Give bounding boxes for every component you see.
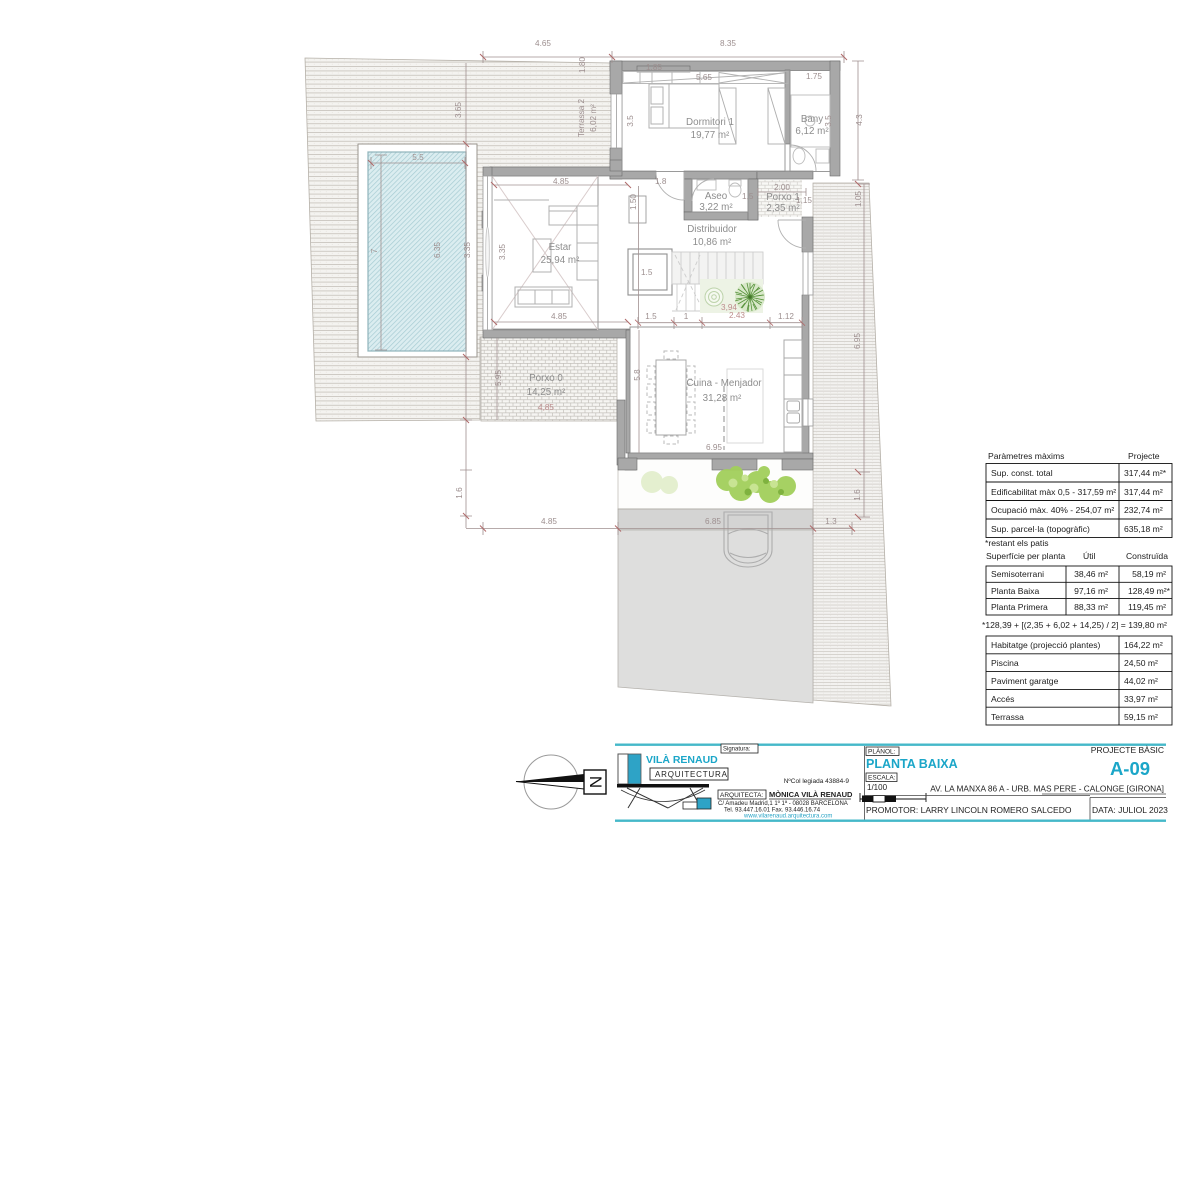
svg-text:MÒNICA VILÀ RENAUD: MÒNICA VILÀ RENAUD — [769, 790, 853, 799]
svg-text:6,02 m²: 6,02 m² — [589, 104, 598, 132]
svg-text:31,28 m²: 31,28 m² — [703, 393, 742, 404]
svg-text:Porxo 1: Porxo 1 — [766, 192, 800, 203]
svg-text:4.3: 4.3 — [855, 114, 864, 126]
svg-text:1.6: 1.6 — [455, 487, 464, 499]
svg-text:4.85: 4.85 — [551, 312, 567, 321]
svg-text:Signatura:: Signatura: — [723, 747, 751, 753]
svg-text:Aseo: Aseo — [705, 191, 728, 202]
svg-text:AV. LA MANXA 86 A - URB. MAS P: AV. LA MANXA 86 A - URB. MAS PERE - CALO… — [930, 784, 1164, 794]
svg-text:4.65: 4.65 — [535, 39, 551, 48]
svg-text:1/100: 1/100 — [867, 783, 888, 792]
svg-text:PLÀNOL:: PLÀNOL: — [868, 747, 896, 756]
svg-text:Cuina - Menjador: Cuina - Menjador — [686, 378, 762, 389]
svg-text:3.65: 3.65 — [454, 102, 463, 118]
svg-text:1.12: 1.12 — [778, 312, 794, 321]
svg-text:1.05: 1.05 — [854, 191, 863, 207]
svg-text:8.35: 8.35 — [720, 39, 736, 48]
svg-text:4.85: 4.85 — [541, 517, 557, 526]
svg-text:6.85: 6.85 — [705, 517, 721, 526]
svg-text:33,97 m²: 33,97 m² — [1124, 694, 1158, 704]
svg-text:1.3: 1.3 — [825, 517, 837, 526]
svg-text:164,22 m²: 164,22 m² — [1124, 640, 1163, 650]
svg-text:3.35: 3.35 — [463, 242, 472, 258]
svg-text:128,49 m²*: 128,49 m²* — [1128, 586, 1171, 596]
svg-text:10,86 m²: 10,86 m² — [693, 237, 732, 248]
svg-text:2.00: 2.00 — [774, 183, 790, 192]
svg-text:Semisoterrani: Semisoterrani — [991, 569, 1044, 579]
svg-text:*restant els patis: *restant els patis — [985, 538, 1049, 548]
svg-text:1.5: 1.5 — [645, 312, 657, 321]
svg-text:6.95: 6.95 — [706, 443, 722, 452]
svg-text:VILÀ RENAUD: VILÀ RENAUD — [646, 753, 718, 766]
svg-text:1.80: 1.80 — [578, 57, 587, 73]
svg-text:Estar: Estar — [549, 242, 573, 253]
svg-text:ARQUITECTURA: ARQUITECTURA — [655, 770, 728, 779]
svg-text:DATA: JULIOL 2023: DATA: JULIOL 2023 — [1092, 805, 1168, 815]
svg-text:Distribuidor: Distribuidor — [687, 224, 737, 235]
svg-text:5.5: 5.5 — [412, 153, 424, 162]
svg-text:4.85: 4.85 — [553, 177, 569, 186]
svg-text:38,46 m²: 38,46 m² — [1074, 569, 1108, 579]
svg-text:88,33 m²: 88,33 m² — [1074, 602, 1108, 612]
svg-text:Útil: Útil — [1083, 551, 1096, 561]
svg-text:232,74 m²: 232,74 m² — [1124, 505, 1163, 515]
svg-text:Sup. const. total: Sup. const. total — [991, 468, 1053, 478]
svg-text:Habitatge (projecció plantes: Habitatge (projecció plantes) — [991, 640, 1101, 650]
svg-text:5.65: 5.65 — [696, 73, 712, 82]
svg-text:317,44 m²: 317,44 m² — [1124, 487, 1163, 497]
svg-text:1.8: 1.8 — [655, 177, 667, 186]
svg-text:Porxo 0: Porxo 0 — [529, 373, 563, 384]
svg-text:PLANTA BAIXA: PLANTA BAIXA — [866, 757, 958, 771]
svg-text:1.75: 1.75 — [806, 72, 822, 81]
svg-text:3.35: 3.35 — [498, 244, 507, 260]
svg-text:Piscina: Piscina — [991, 658, 1019, 668]
svg-text:C/ Amadeu Madrid,1 1º 1ª - 08: C/ Amadeu Madrid,1 1º 1ª - 08028 BARCELO… — [718, 800, 848, 807]
svg-text:3,22 m²: 3,22 m² — [699, 202, 733, 213]
svg-text:Paràmetres màxims: Paràmetres màxims — [988, 451, 1064, 461]
svg-text:119,45 m²: 119,45 m² — [1128, 602, 1166, 612]
svg-text:25,94 m²: 25,94 m² — [541, 255, 580, 266]
svg-text:Superfície per planta: Superfície per planta — [986, 551, 1066, 561]
svg-text:5.95: 5.95 — [494, 370, 503, 386]
svg-text:3,94: 3,94 — [721, 303, 737, 312]
svg-text:1.85: 1.85 — [646, 63, 662, 72]
svg-text:NºCol legiada 43884-9: NºCol legiada 43884-9 — [784, 778, 850, 785]
svg-text:1.50: 1.50 — [629, 194, 638, 210]
svg-text:A-09: A-09 — [1110, 758, 1150, 779]
svg-text:Paviment garatge: Paviment garatge — [991, 676, 1059, 686]
svg-text:Terrassa 2: Terrassa 2 — [577, 98, 586, 137]
svg-text:Ocupació màx. 40% - 254,07 m: Ocupació màx. 40% - 254,07 m² — [991, 505, 1114, 515]
svg-text:19,77 m²: 19,77 m² — [691, 130, 730, 141]
svg-text:58,19 m²: 58,19 m² — [1132, 569, 1166, 579]
svg-text:635,18 m²: 635,18 m² — [1124, 524, 1163, 534]
svg-text:4,85: 4,85 — [538, 403, 554, 412]
svg-text:*128,39 + [(2,35 + 6,02 + 14,2: *128,39 + [(2,35 + 6,02 + 14,25) / 2] = … — [982, 620, 1167, 630]
svg-text:44,02 m²: 44,02 m² — [1124, 676, 1158, 686]
svg-text:1: 1 — [684, 312, 689, 321]
svg-text:317,44 m²*: 317,44 m²* — [1124, 468, 1167, 478]
svg-text:www.vilarenaud.arquitectura.co: www.vilarenaud.arquitectura.com — [743, 814, 832, 820]
svg-text:7: 7 — [370, 248, 379, 253]
svg-text:1,15: 1,15 — [796, 196, 812, 205]
svg-text:5.8: 5.8 — [633, 369, 642, 381]
svg-text:Sup. parcel·la (topogràfic): Sup. parcel·la (topogràfic) — [991, 524, 1090, 534]
svg-text:N: N — [586, 776, 605, 788]
svg-text:1.6: 1.6 — [853, 489, 862, 501]
svg-text:24,50 m²: 24,50 m² — [1124, 658, 1158, 668]
svg-text:ARQUITECTA:: ARQUITECTA: — [720, 792, 763, 799]
svg-text:14,25 m²: 14,25 m² — [527, 387, 566, 398]
svg-text:6.35: 6.35 — [433, 242, 442, 258]
svg-text:Projecte: Projecte — [1128, 451, 1160, 461]
svg-text:Terrassa: Terrassa — [991, 712, 1024, 722]
svg-text:6.95: 6.95 — [853, 333, 862, 349]
svg-text:1,5: 1,5 — [742, 192, 754, 201]
svg-text:59,15 m²: 59,15 m² — [1124, 712, 1158, 722]
svg-text:PROJECTE BÀSIC: PROJECTE BÀSIC — [1091, 745, 1164, 755]
svg-text:2.43: 2.43 — [729, 311, 745, 320]
svg-text:97,16 m²: 97,16 m² — [1074, 586, 1108, 596]
svg-text:Bany: Bany — [801, 114, 823, 125]
svg-text:3.5: 3.5 — [824, 115, 833, 127]
svg-text:Accés: Accés — [991, 694, 1014, 704]
svg-text:1.5: 1.5 — [641, 268, 653, 277]
svg-text:Planta Primera: Planta Primera — [991, 602, 1048, 612]
svg-text:ESCALA:: ESCALA: — [868, 775, 896, 782]
svg-text:PROMOTOR: LARRY LINCOLN ROME: PROMOTOR: LARRY LINCOLN ROMERO SALCEDO — [866, 805, 1072, 815]
svg-text:Construïda: Construïda — [1126, 551, 1168, 561]
svg-text:3.5: 3.5 — [626, 115, 635, 127]
svg-text:Planta Baixa: Planta Baixa — [991, 586, 1039, 596]
svg-text:Dormitori 1: Dormitori 1 — [686, 117, 734, 128]
svg-text:Edificabilitat màx 0,5 - 317: Edificabilitat màx 0,5 - 317,59 m² — [991, 487, 1116, 497]
